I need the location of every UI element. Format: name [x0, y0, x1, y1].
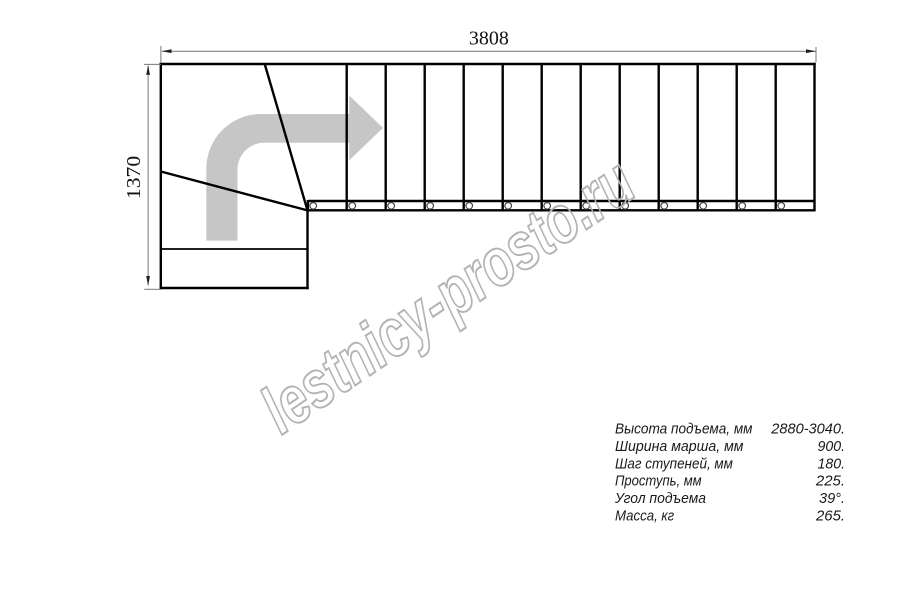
- svg-text:1370: 1370: [123, 156, 145, 199]
- svg-text:39°.: 39°.: [819, 490, 845, 507]
- svg-text:265.: 265.: [815, 507, 845, 524]
- svg-text:225.: 225.: [815, 473, 845, 490]
- svg-text:900.: 900.: [818, 438, 846, 455]
- svg-text:Высота подъема, мм: Высота подъема, мм: [615, 421, 753, 438]
- svg-text:Ширина марша, мм: Ширина марша, мм: [615, 438, 744, 455]
- svg-text:Проступь, мм: Проступь, мм: [615, 473, 702, 490]
- svg-text:180.: 180.: [818, 455, 846, 472]
- svg-text:Угол подъема: Угол подъема: [614, 490, 706, 507]
- svg-text:Шаг ступеней, мм: Шаг ступеней, мм: [615, 455, 733, 472]
- svg-text:Масса, кг: Масса, кг: [615, 507, 675, 524]
- svg-text:3808: 3808: [469, 27, 509, 49]
- svg-text:2880-3040.: 2880-3040.: [770, 421, 845, 438]
